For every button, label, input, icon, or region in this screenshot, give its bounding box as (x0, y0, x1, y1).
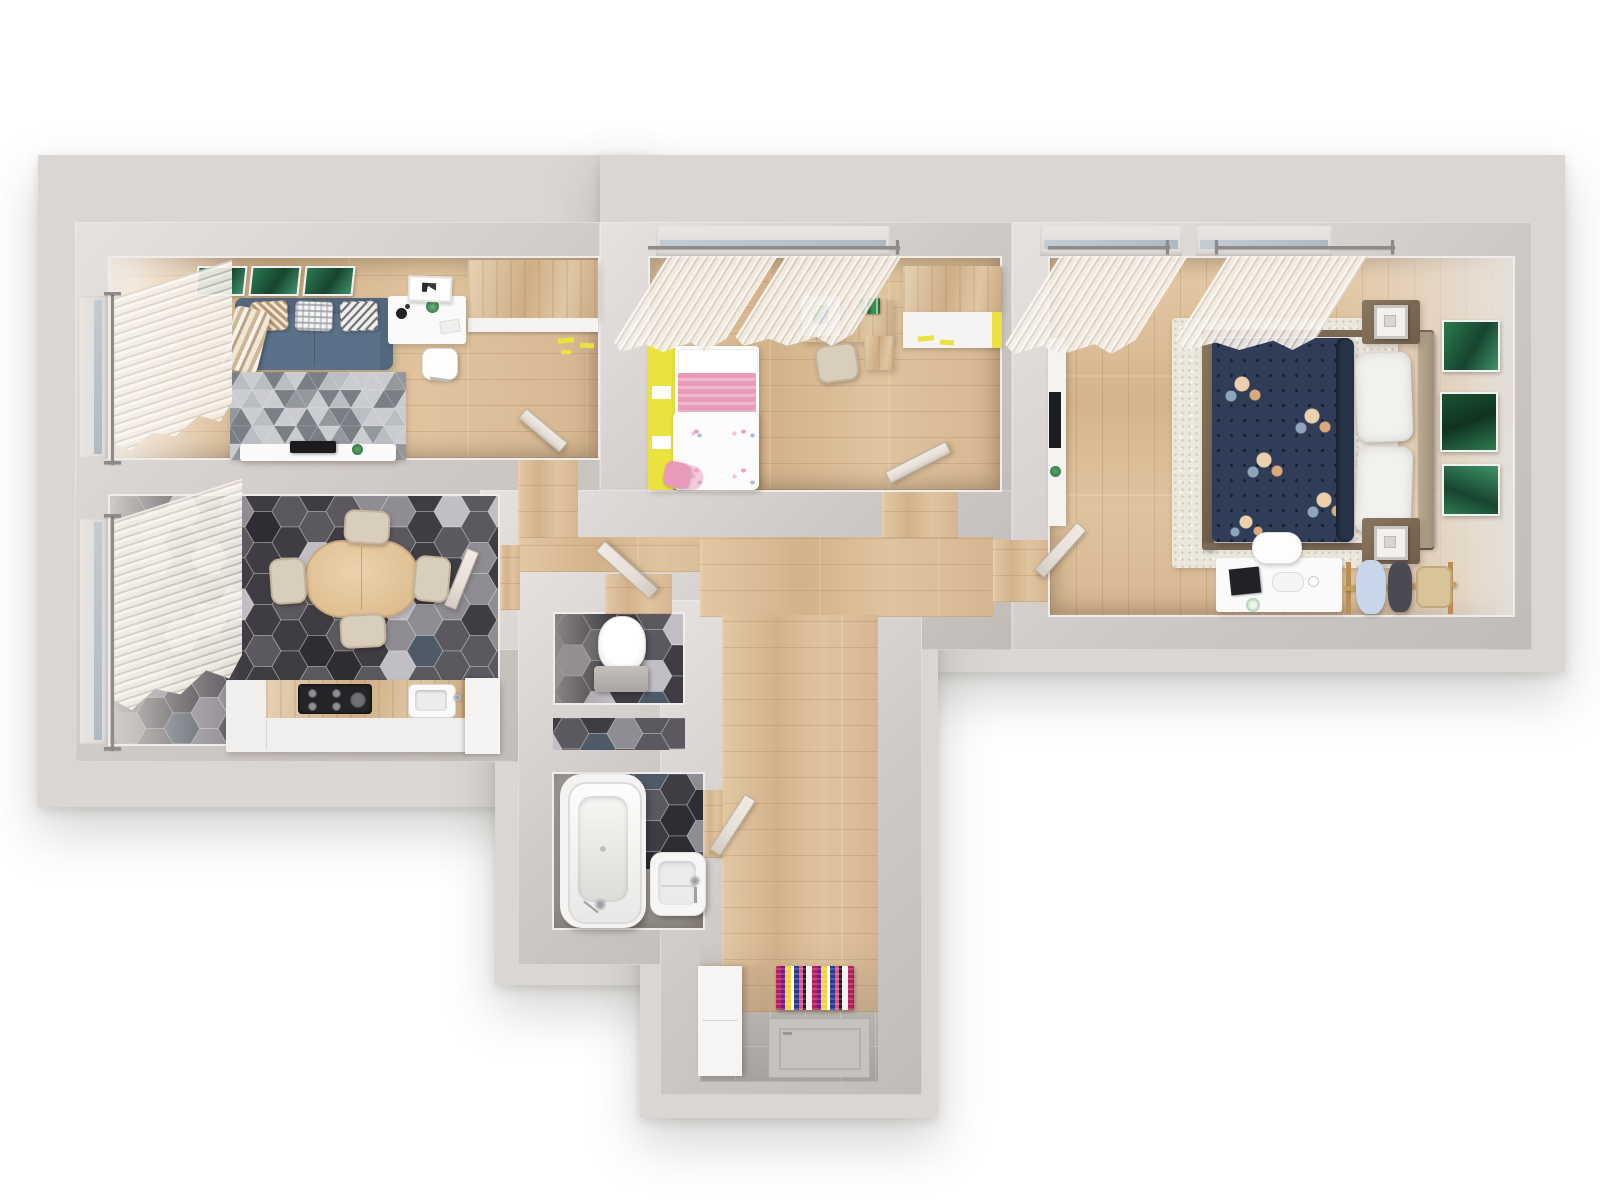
living-desk-papers (439, 319, 461, 335)
kitchen-cooktop (298, 684, 372, 714)
entry-cabinet (698, 966, 742, 1076)
kitchen-table (304, 540, 420, 618)
entry-cabinet-seam (702, 1020, 738, 1021)
master-duvet-fold (1336, 338, 1354, 542)
rack-garment-dark (1388, 562, 1412, 612)
rack-basket (1416, 566, 1452, 608)
kitchen-tall-cabinet (465, 678, 500, 754)
kitchen-chair-left (268, 557, 307, 605)
master-tv-plant (1050, 466, 1061, 477)
floorplan-stage (0, 0, 1600, 1200)
kids-bed-frame-gap-2 (652, 436, 671, 449)
burner-3 (308, 702, 317, 711)
doorway-living (518, 460, 578, 538)
vanity-book (1229, 567, 1262, 596)
master-wall-art-3 (1442, 464, 1500, 516)
rod-living-tick-top (104, 292, 121, 295)
hallway-floor-main (700, 537, 993, 617)
curtain-rod-master-1 (1048, 246, 1170, 249)
sofa-pillow-2 (294, 300, 333, 331)
rod-master-2-finial-left (1215, 240, 1218, 254)
master-lamp-bottom (1374, 526, 1408, 560)
burner-5 (350, 692, 366, 708)
kitchen-faucet (454, 694, 461, 701)
master-bed-duvet (1212, 338, 1352, 542)
entry-door (768, 1018, 870, 1078)
kids-bed-blanket (678, 373, 756, 413)
sink-line (661, 885, 695, 887)
sink-faucet (691, 877, 699, 885)
bathtub (560, 774, 646, 928)
kitchen-chair-top (343, 509, 391, 545)
burner-4 (332, 702, 341, 711)
living-wardrobe-handle-2 (580, 343, 594, 349)
sofa-pillow-3 (339, 300, 378, 331)
living-tv (290, 441, 336, 453)
window-living-glass (94, 300, 102, 454)
counter-seam-2 (266, 720, 267, 750)
curtain-rod-master-2 (1215, 246, 1395, 249)
living-desk-lamp (396, 308, 407, 319)
kids-wardrobe-handle-2 (940, 340, 954, 346)
kitchen-counter (226, 680, 500, 752)
shaft-niche (553, 718, 685, 750)
living-wardrobe-front (468, 318, 598, 332)
wc-toilet-bowl (598, 616, 646, 672)
rod-living-tick-bottom (104, 461, 121, 464)
entry-rug (776, 966, 854, 1010)
bed-headboard (1418, 332, 1434, 548)
wc-toilet-tank (594, 666, 648, 692)
rod-kitchen-tick-bottom (104, 747, 121, 750)
living-wall-art-2 (248, 266, 301, 296)
curtain-rod-living (111, 292, 114, 464)
living-leaning-frame (408, 275, 453, 303)
living-desk-chair (422, 348, 458, 380)
rod-master-1-finial (1166, 240, 1169, 254)
rod-kitchen-tick-top (104, 514, 121, 517)
vanity-flowers (1246, 598, 1260, 612)
vanity-cup (1308, 576, 1319, 587)
bathtub-faucet (596, 900, 605, 909)
kids-bed-frame-gap-1 (652, 386, 671, 399)
entry-door-handle (783, 1032, 792, 1035)
living-wall-art-3 (302, 266, 355, 296)
window-kitchen-glass (94, 522, 102, 740)
doorway-kitchen (500, 545, 520, 610)
burner-2 (332, 689, 341, 698)
kitchen-sink (408, 684, 456, 718)
living-wardrobe (468, 260, 598, 318)
kids-side-unit (864, 336, 894, 370)
master-wall-art-1 (1442, 320, 1500, 372)
sink-basin (415, 690, 447, 711)
rack-garment-blue (1356, 560, 1386, 614)
master-vanity (1216, 558, 1342, 612)
sink-bowl (658, 861, 696, 905)
bathtub-drain (600, 846, 606, 852)
kitchen-chair-right (412, 555, 452, 604)
master-pillow-1 (1354, 351, 1413, 443)
living-console-plant (352, 444, 363, 455)
kitchen-chair-bottom (339, 613, 387, 649)
master-tv (1049, 392, 1061, 448)
kids-desk-chair (814, 341, 861, 384)
curtain-rod-kids (648, 246, 900, 249)
rod-master-2-finial-right (1391, 240, 1394, 254)
kids-wardrobe-accent-strip (992, 312, 1002, 348)
kids-wardrobe-top (903, 266, 1002, 312)
bathroom-sink (650, 852, 706, 916)
living-wardrobe-handle-3 (561, 350, 571, 354)
master-vanity-chair (1252, 532, 1302, 564)
master-lamp-top (1374, 305, 1408, 339)
kids-bed-pillow (678, 349, 758, 374)
vanity-tray (1272, 572, 1304, 592)
rod-kids-finial (896, 240, 899, 254)
sink-faucet-stem (694, 887, 697, 903)
curtain-rod-kitchen (111, 514, 114, 750)
doorway-kids (882, 492, 958, 538)
burner-1 (308, 689, 317, 698)
master-wall-art-2 (1440, 392, 1498, 452)
niche-hex-tiles (553, 718, 685, 750)
leaning-frame-bird (422, 283, 436, 292)
table-seam (361, 546, 362, 610)
master-clothes-rack (1342, 558, 1460, 618)
